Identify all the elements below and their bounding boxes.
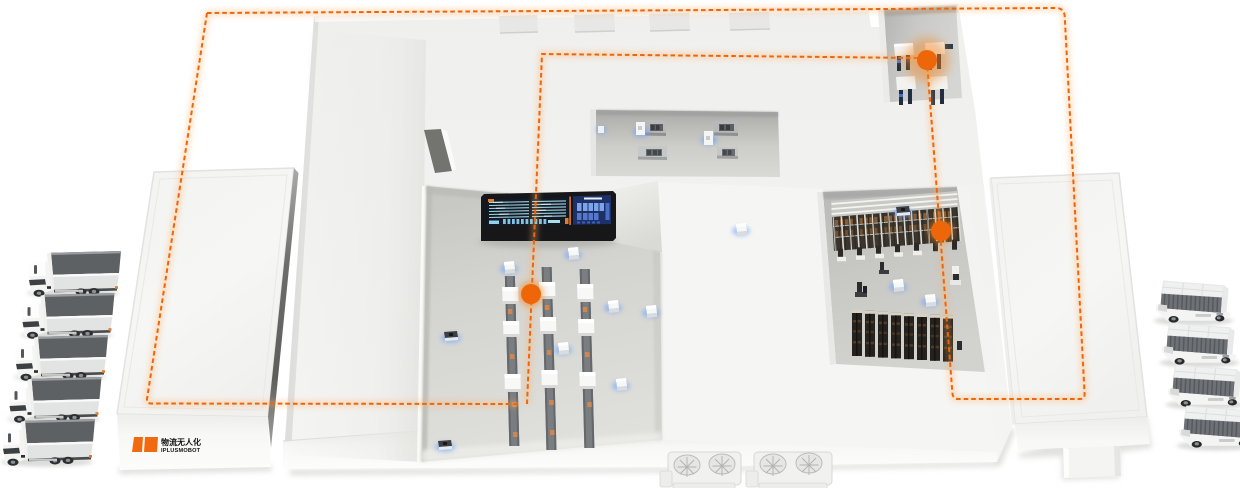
svg-text:物流无人化: 物流无人化	[161, 437, 201, 447]
svg-text:IPLUSMOBOT: IPLUSMOBOT	[161, 448, 201, 454]
